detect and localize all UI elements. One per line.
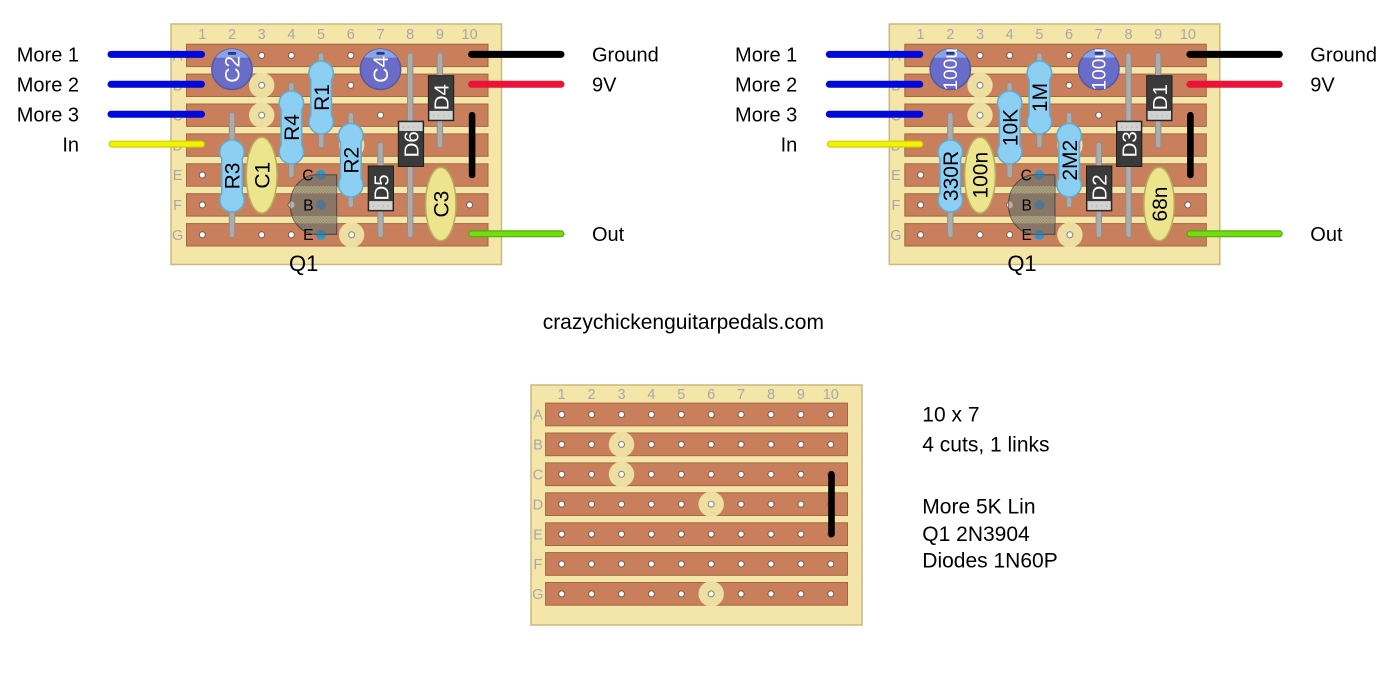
svg-text:1: 1 — [198, 27, 206, 43]
svg-text:C: C — [1021, 167, 1032, 184]
svg-text:D3: D3 — [1119, 131, 1142, 157]
svg-text:G: G — [532, 587, 543, 603]
svg-text:Q1: Q1 — [1007, 251, 1036, 276]
svg-text:E: E — [891, 168, 901, 184]
svg-text:A: A — [533, 408, 543, 424]
svg-text:E: E — [173, 168, 183, 184]
svg-text:More 5K Lin: More 5K Lin — [922, 496, 1035, 519]
svg-text:Q1: Q1 — [289, 251, 318, 276]
svg-text:R1: R1 — [311, 84, 334, 111]
svg-text:More 1: More 1 — [735, 45, 797, 67]
svg-text:Ground: Ground — [1310, 45, 1377, 67]
svg-text:Ground: Ground — [592, 45, 659, 67]
svg-text:9: 9 — [1154, 27, 1162, 43]
svg-text:6: 6 — [347, 27, 355, 43]
svg-text:More 1: More 1 — [17, 45, 79, 67]
svg-text:crazychickenguitarpedals.com: crazychickenguitarpedals.com — [543, 311, 824, 334]
svg-text:1M: 1M — [1029, 83, 1052, 112]
svg-text:C3: C3 — [431, 191, 454, 218]
svg-text:D4: D4 — [431, 84, 454, 110]
svg-text:9: 9 — [797, 387, 805, 403]
svg-text:9: 9 — [436, 27, 444, 43]
svg-text:7: 7 — [1095, 27, 1103, 43]
svg-text:R3: R3 — [222, 163, 245, 190]
svg-text:10K: 10K — [999, 109, 1022, 146]
svg-text:Diodes 1N60P: Diodes 1N60P — [922, 550, 1057, 573]
svg-text:In: In — [62, 134, 79, 156]
svg-text:6: 6 — [707, 387, 715, 403]
svg-text:68n: 68n — [1149, 187, 1172, 222]
svg-text:330R: 330R — [940, 151, 963, 201]
svg-text:10: 10 — [462, 27, 478, 43]
svg-text:Out: Out — [592, 224, 625, 246]
svg-text:4: 4 — [647, 387, 655, 403]
svg-text:8: 8 — [767, 387, 775, 403]
svg-text:More 3: More 3 — [17, 105, 79, 127]
svg-text:9V: 9V — [592, 75, 617, 97]
svg-text:1: 1 — [917, 27, 925, 43]
svg-text:Q1 2N3904: Q1 2N3904 — [922, 523, 1030, 546]
svg-text:G: G — [172, 228, 183, 244]
svg-text:C4: C4 — [370, 56, 393, 83]
svg-text:7: 7 — [737, 387, 745, 403]
svg-text:More 2: More 2 — [17, 75, 79, 97]
svg-text:7: 7 — [376, 27, 384, 43]
svg-text:4: 4 — [287, 27, 295, 43]
svg-text:2M2: 2M2 — [1059, 140, 1082, 181]
svg-text:D: D — [533, 497, 543, 513]
svg-text:E: E — [303, 227, 313, 244]
svg-text:3: 3 — [258, 27, 266, 43]
svg-text:More 2: More 2 — [735, 75, 797, 97]
svg-text:4: 4 — [1006, 27, 1014, 43]
svg-text:C2: C2 — [222, 56, 245, 83]
svg-text:Out: Out — [1310, 224, 1343, 246]
svg-text:10 x 7: 10 x 7 — [922, 404, 979, 427]
svg-text:E: E — [1021, 227, 1031, 244]
svg-text:B: B — [303, 197, 313, 214]
svg-text:C1: C1 — [251, 162, 274, 189]
svg-text:D6: D6 — [400, 131, 423, 157]
svg-text:5: 5 — [677, 387, 685, 403]
svg-text:F: F — [173, 198, 182, 214]
svg-text:4 cuts, 1 links: 4 cuts, 1 links — [922, 433, 1049, 456]
svg-text:2: 2 — [588, 387, 596, 403]
svg-text:F: F — [891, 198, 900, 214]
svg-text:D5: D5 — [370, 174, 393, 200]
svg-text:100u: 100u — [1090, 48, 1111, 90]
svg-text:D2: D2 — [1089, 174, 1112, 200]
svg-text:C: C — [533, 468, 543, 484]
svg-text:8: 8 — [406, 27, 414, 43]
svg-text:3: 3 — [976, 27, 984, 43]
svg-text:5: 5 — [317, 27, 325, 43]
svg-text:More 3: More 3 — [735, 105, 797, 127]
svg-text:10: 10 — [1180, 27, 1196, 43]
svg-text:8: 8 — [1124, 27, 1132, 43]
svg-text:10: 10 — [823, 387, 839, 403]
svg-text:B: B — [1021, 197, 1031, 214]
svg-text:6: 6 — [1065, 27, 1073, 43]
svg-text:3: 3 — [617, 387, 625, 403]
svg-text:G: G — [890, 228, 901, 244]
svg-text:100u: 100u — [941, 48, 962, 90]
svg-text:9V: 9V — [1310, 75, 1335, 97]
svg-text:5: 5 — [1035, 27, 1043, 43]
svg-text:1: 1 — [558, 387, 566, 403]
svg-text:2: 2 — [946, 27, 954, 43]
svg-text:F: F — [533, 557, 542, 573]
svg-text:C: C — [302, 167, 313, 184]
svg-text:R4: R4 — [281, 114, 304, 141]
svg-text:D1: D1 — [1149, 84, 1172, 110]
svg-text:100n: 100n — [970, 152, 993, 199]
svg-text:R2: R2 — [341, 147, 364, 174]
svg-text:E: E — [533, 527, 543, 543]
svg-text:B: B — [533, 438, 543, 454]
svg-text:In: In — [781, 134, 798, 156]
svg-text:2: 2 — [228, 27, 236, 43]
